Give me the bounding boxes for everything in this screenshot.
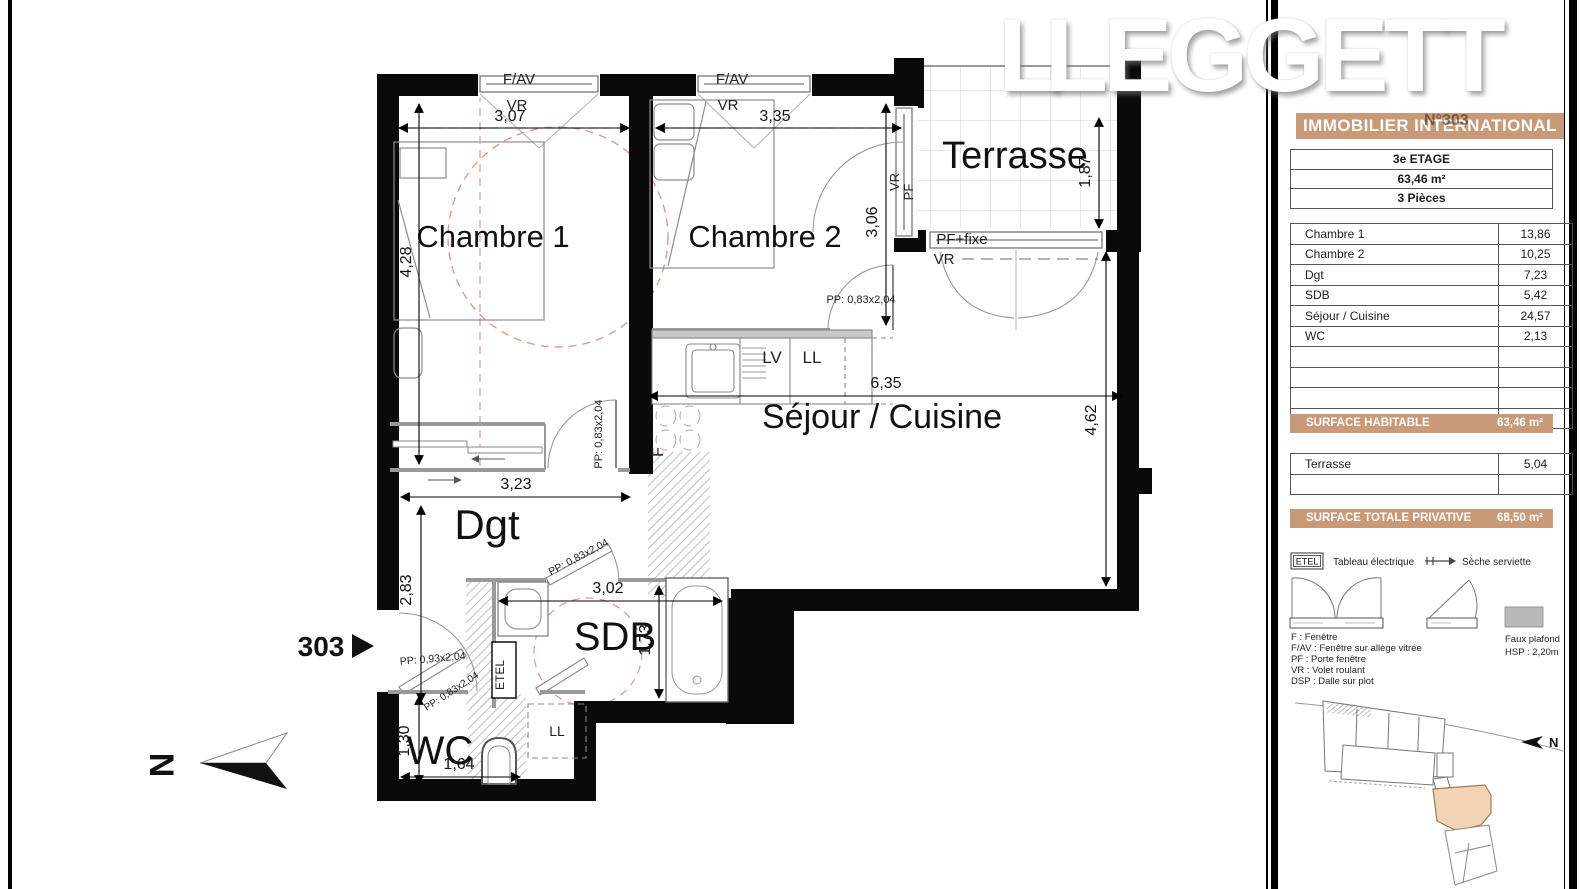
dim-h-sdb: 1,73 xyxy=(637,624,654,655)
washbasin xyxy=(498,582,548,636)
seche-legend-label: Sèche serviette xyxy=(1462,557,1531,568)
room-label-chambre2: Chambre 2 xyxy=(688,219,841,254)
legend-abbr-vr: VR : Volet roulant xyxy=(1291,665,1365,676)
terrasse-cell-value: 5,04 xyxy=(1499,454,1573,475)
panel-border-left xyxy=(1271,0,1278,889)
room-cell-value: 7,23 xyxy=(1499,265,1573,286)
room-cell-label: Séjour / Cuisine xyxy=(1291,306,1499,327)
surface-totale-value: 68,50 m² xyxy=(1497,509,1543,528)
unit-number: 303 xyxy=(298,631,345,662)
pp-label-ch1: PP: 0,83x2,04 xyxy=(593,399,605,468)
north-letter: N xyxy=(142,753,180,778)
surface-habitable-label: SURFACE HABITABLE xyxy=(1306,414,1430,433)
empty-cell xyxy=(1291,367,1499,388)
ll-label-wc: LL xyxy=(549,723,565,739)
north-arrow-icon: N xyxy=(142,733,287,789)
site-building-lower xyxy=(1445,825,1497,885)
site-north-letter: N xyxy=(1549,735,1558,750)
surface-habitable-band: SURFACE HABITABLE 63,46 m² xyxy=(1290,414,1553,433)
table-row: Terrasse 5,04 xyxy=(1291,454,1573,475)
summary-rooms: 3 Pièces xyxy=(1291,189,1553,209)
etel-label-plan: ETEL xyxy=(493,660,507,690)
dim-h-ch1: 4,28 xyxy=(398,246,415,277)
legend-abbr-pf: PF : Porte fenêtre xyxy=(1291,654,1366,665)
pp-label-ch2: PP: 0,83x2,04 xyxy=(826,294,895,306)
empty-cell xyxy=(1499,474,1573,495)
room-cell-label: Dgt xyxy=(1291,265,1499,286)
fav-label-1: F/AV xyxy=(503,71,535,88)
legend: ETEL Tableau électrique Sèche serviette … xyxy=(1285,550,1570,695)
table-row: Dgt 7,23 xyxy=(1291,265,1573,286)
floor-plan: Chambre 1 Chambre 2 Terrasse Séjour / Cu… xyxy=(0,0,1270,889)
dim-h-dgt: 2,83 xyxy=(398,574,415,605)
f-label: F xyxy=(650,447,667,457)
fav-label-2: F/AV xyxy=(716,71,748,88)
table-row: WC 2,13 xyxy=(1291,326,1573,347)
unit-arrow-icon xyxy=(352,634,374,658)
highlighted-unit xyxy=(1433,785,1491,831)
room-cell-label: Chambre 1 xyxy=(1291,224,1499,245)
dim-w-wc: 1,64 xyxy=(443,756,474,773)
dim-h-wc: 1,30 xyxy=(396,725,413,756)
rooms-table: Chambre 1 13,86 Chambre 2 10,25 Dgt 7,23… xyxy=(1290,223,1573,429)
table-row-empty xyxy=(1291,388,1573,409)
site-plan: N xyxy=(1285,693,1570,889)
summary-floor: 3e ETAGE xyxy=(1291,150,1553,170)
room-cell-value: 5,42 xyxy=(1499,285,1573,306)
dim-w-sdb: 3,02 xyxy=(592,580,623,597)
dim-h-ch2: 3,06 xyxy=(864,206,881,237)
table-row-empty xyxy=(1291,474,1573,495)
table-row: Séjour / Cuisine 24,57 xyxy=(1291,306,1573,327)
room-cell-value: 24,57 xyxy=(1499,306,1573,327)
summary-table: 3e ETAGE 63,46 m² 3 Pièces xyxy=(1290,149,1553,209)
table-row: 3e ETAGE xyxy=(1291,150,1553,170)
table-row: Chambre 1 13,86 xyxy=(1291,224,1573,245)
site-north-icon: N xyxy=(1521,735,1558,750)
room-cell-label: Chambre 2 xyxy=(1291,244,1499,265)
room-cell-label: WC xyxy=(1291,326,1499,347)
empty-cell xyxy=(1291,388,1499,409)
pp93-label-entry: PP: 0,93x2,04 xyxy=(399,650,466,668)
vr-label-terrace: VR xyxy=(887,173,902,191)
towel-rail-icon xyxy=(1425,557,1456,565)
table-row-empty xyxy=(1291,367,1573,388)
hsp-label: HSP : 2,20m xyxy=(1505,647,1559,658)
empty-cell xyxy=(1499,367,1573,388)
empty-cell xyxy=(1291,347,1499,368)
table-row-empty xyxy=(1291,347,1573,368)
pf-fixe-label: PF+fixe xyxy=(936,231,987,248)
surface-habitable-value: 63,46 m² xyxy=(1497,414,1543,433)
room-cell-value: 2,13 xyxy=(1499,326,1573,347)
dim-w-sejour: 6,35 xyxy=(870,375,901,392)
dim-w-ch2: 3,35 xyxy=(759,108,790,125)
etel-legend-key: ETEL xyxy=(1296,557,1319,567)
empty-cell xyxy=(1499,388,1573,409)
surface-totale-band: SURFACE TOTALE PRIVATIVE 68,50 m² xyxy=(1290,509,1553,528)
unit-marker: 303 xyxy=(298,631,374,662)
vr-label-1: VR xyxy=(507,97,528,114)
closet xyxy=(393,441,542,480)
unit-watermark: N°303 xyxy=(1424,112,1469,130)
panel-border-right xyxy=(1569,0,1577,889)
etel-legend-icon: ETEL xyxy=(1291,553,1323,569)
empty-cell xyxy=(1499,347,1573,368)
vr-label-3: VR xyxy=(934,251,955,268)
room-label-dgt: Dgt xyxy=(454,501,520,548)
legend-abbr-f: F : Fenêtre xyxy=(1291,632,1337,643)
window-single-icon xyxy=(1427,580,1477,628)
window-double-icon xyxy=(1290,578,1383,628)
legend-abbreviations: F : Fenêtre F/AV : Fenêtre sur allège vi… xyxy=(1291,632,1560,687)
room-label-sejour: Séjour / Cuisine xyxy=(762,398,1002,436)
terrasse-cell-label: Terrasse xyxy=(1291,454,1499,475)
pf-label-terrace: PF xyxy=(901,184,916,201)
room-cell-label: SDB xyxy=(1291,285,1499,306)
faux-plafond-swatch xyxy=(1505,607,1543,627)
room-cell-value: 10,25 xyxy=(1499,244,1573,265)
bathtub xyxy=(666,578,728,702)
kitchen-counter xyxy=(652,330,893,404)
table-row: SDB 5,42 xyxy=(1291,285,1573,306)
dim-w-dgt: 3,23 xyxy=(500,476,531,493)
room-cell-value: 13,86 xyxy=(1499,224,1573,245)
legend-abbr-dsp: DSP : Dalle sur plot xyxy=(1291,676,1374,687)
legend-abbr-fav: F/AV : Fenêtre sur allège vitrée xyxy=(1291,643,1422,654)
brand-logo-text: LEGGETT xyxy=(1045,0,1501,114)
surface-totale-label: SURFACE TOTALE PRIVATIVE xyxy=(1306,509,1471,528)
lv-label: LV xyxy=(762,348,782,367)
dim-h-terrasse: 1,87 xyxy=(1077,156,1094,187)
empty-cell xyxy=(1291,474,1499,495)
ll-label-kitchen: LL xyxy=(803,348,822,367)
brand-logo: LLEGGETT xyxy=(998,2,1576,114)
room-label-chambre1: Chambre 1 xyxy=(416,219,569,254)
bed-chambre1 xyxy=(394,142,544,378)
room-label-terrasse: Terrasse xyxy=(942,135,1088,177)
faux-plafond-label: Faux plafond xyxy=(1505,634,1560,645)
table-row: 3 Pièces xyxy=(1291,189,1553,209)
terrasse-table: Terrasse 5,04 xyxy=(1290,453,1573,495)
dim-h-sejour: 4,62 xyxy=(1083,404,1100,435)
table-row: 63,46 m² xyxy=(1291,169,1553,189)
table-row: Chambre 2 10,25 xyxy=(1291,244,1573,265)
summary-area: 63,46 m² xyxy=(1291,169,1553,189)
vr-label-2: VR xyxy=(718,97,739,114)
etel-legend-label: Tableau électrique xyxy=(1333,557,1415,568)
